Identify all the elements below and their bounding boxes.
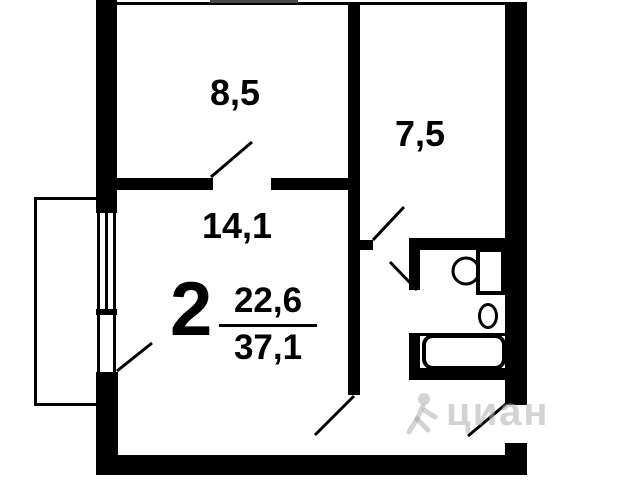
bathtub-icon	[424, 336, 504, 368]
cian-person-icon	[402, 386, 442, 438]
door-swing-balcony	[117, 343, 152, 371]
cian-watermark: циан	[402, 386, 602, 438]
door-swing-wc	[390, 262, 417, 290]
watermark-text: циан	[446, 392, 550, 432]
toilet-icon	[453, 258, 479, 284]
sink-icon	[480, 305, 497, 328]
floor-plan: 8,5 7,5 14,1 2 22,6 37,1 циан	[0, 0, 640, 480]
toilet-tank-icon	[478, 250, 503, 293]
door-swing-room-top-left	[211, 142, 252, 177]
door-swing-room-top-right	[373, 207, 404, 240]
door-swing-living-room	[315, 396, 354, 435]
